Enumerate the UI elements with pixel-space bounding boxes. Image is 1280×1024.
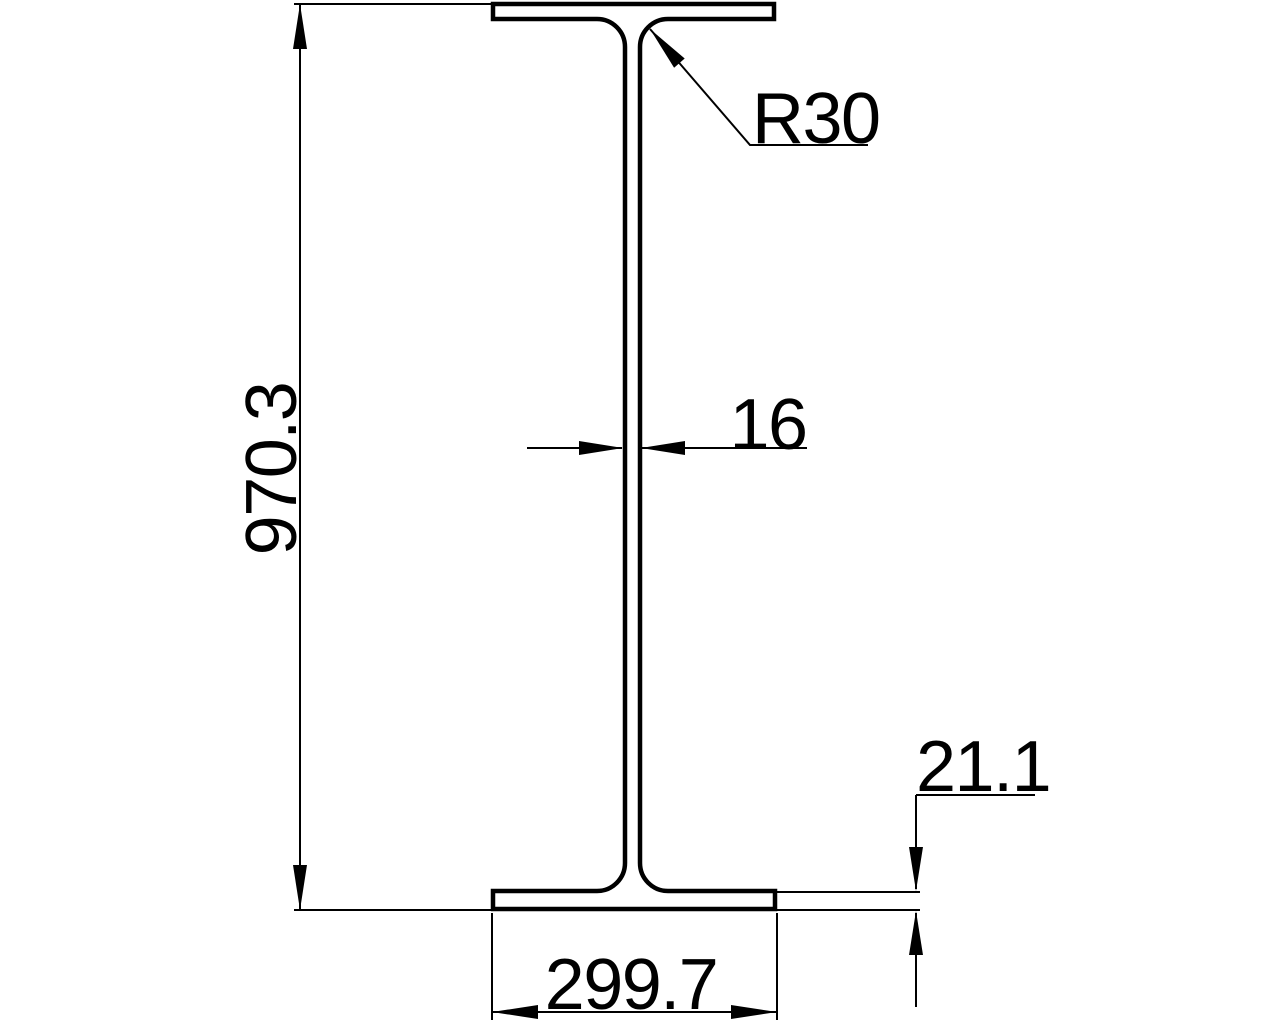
arrowhead-left-icon <box>492 1005 538 1019</box>
arrowhead-up-icon <box>293 4 307 49</box>
arrowhead-left-icon <box>641 441 685 455</box>
dimension-fillet-radius: R30 <box>650 29 880 159</box>
dimension-label-fillet-radius: R30 <box>752 79 880 159</box>
dimension-label-flange-thickness: 21.1 <box>916 727 1050 807</box>
dimension-flange-width: 299.7 <box>492 913 777 1024</box>
dimension-label-overall-height: 970.3 <box>232 383 312 556</box>
arrowhead-right-icon <box>731 1005 777 1019</box>
arrowhead-leader-icon <box>650 29 685 68</box>
ibeam-technical-drawing: 970.3 16 R30 21.1 299.7 <box>0 0 1280 1024</box>
dimension-web-thickness: 16 <box>527 385 807 465</box>
dimension-label-web-thickness: 16 <box>729 385 806 465</box>
arrowhead-down-icon <box>293 865 307 910</box>
arrowhead-down-icon <box>909 847 923 891</box>
dimension-flange-thickness: 21.1 <box>777 727 1050 1007</box>
dimension-overall-height: 970.3 <box>232 4 491 910</box>
arrowhead-up-icon <box>909 911 923 955</box>
dimension-label-flange-width: 299.7 <box>545 945 718 1024</box>
arrowhead-right-icon <box>579 441 623 455</box>
